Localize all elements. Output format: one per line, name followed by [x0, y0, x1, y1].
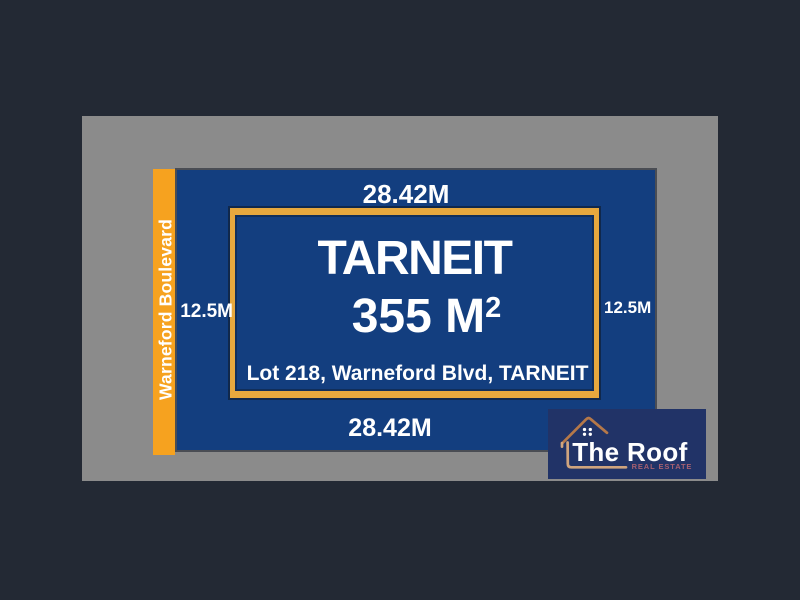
svg-text:REAL ESTATE: REAL ESTATE — [632, 462, 693, 471]
